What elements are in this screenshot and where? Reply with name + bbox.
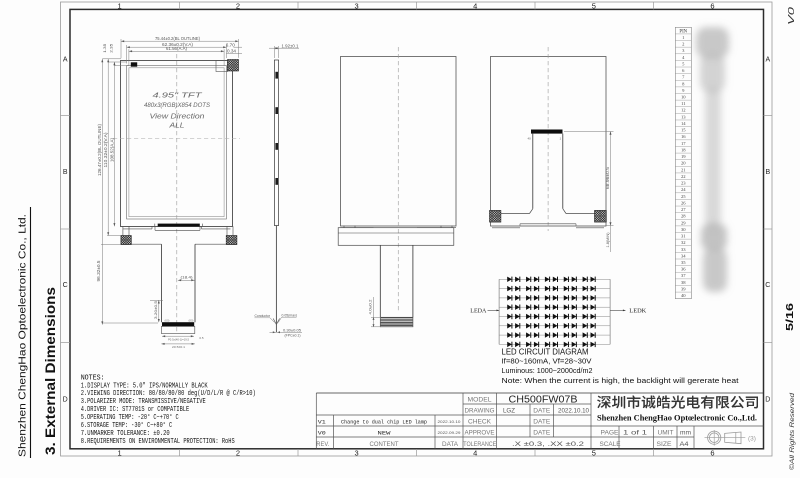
svg-text:1.35: 1.35 [103,44,107,53]
svg-text:SIZE: SIZE [657,441,673,448]
svg-text:A4: A4 [680,441,689,448]
svg-text:3.POLARIZER MODE: TRANSMISSIVE: 3.POLARIZER MODE: TRANSMISSIVE/NEGATIVE [81,398,206,406]
svg-text:37: 37 [681,273,686,278]
svg-text:28: 28 [681,214,686,219]
svg-text:2: 2 [236,2,240,11]
svg-text:4.95" TFT: 4.95" TFT [153,93,203,100]
svg-text:17: 17 [681,141,686,146]
svg-text:P0.5x(40-1)=19.5: P0.5x(40-1)=19.5 [168,338,189,342]
svg-text:38: 38 [681,280,686,285]
svg-text:1: 1 [118,2,122,11]
svg-text:PAGE: PAGE [601,430,620,437]
svg-text:11: 11 [681,101,686,106]
svg-text:2.35: 2.35 [110,44,114,53]
svg-text:CONTENT: CONTENT [370,441,399,448]
svg-text:3.20±0.5: 3.20±0.5 [153,300,158,319]
svg-text:UMIT: UMIT [658,430,674,437]
svg-text:4: 4 [473,448,477,457]
svg-text:6: 6 [710,448,714,457]
svg-text:(FPC±0.1): (FPC±0.1) [285,332,302,337]
svg-text:7.UNMARKER TOLERANCE: ±0.20: 7.UNMARKER TOLERANCE: ±0.20 [81,430,170,438]
svg-text:DATE: DATE [533,430,551,437]
svg-text:2022.10.10: 2022.10.10 [438,420,461,424]
svg-text:20: 20 [681,161,686,166]
svg-text:5: 5 [592,448,596,457]
svg-text:32: 32 [681,240,686,245]
svg-text:V0: V0 [318,430,327,437]
svg-text:23: 23 [681,181,686,186]
svg-text:30: 30 [681,227,686,232]
svg-text:0.34: 0.34 [227,49,237,54]
svg-text:Shenzhen ChengHao Optœlectroni: Shenzhen ChengHao Optœlectronic Co.,Ltd. [597,412,757,422]
svg-text:©All Rights Reserved: ©All Rights Reserved [788,392,796,470]
svg-text:0.5: 0.5 [199,336,204,340]
svg-text:18: 18 [681,147,686,152]
svg-text:Conductor: Conductor [255,313,271,318]
svg-text:LED CIRCUIT DIAGRAM: LED CIRCUIT DIAGRAM [502,348,589,357]
svg-text:3: 3 [355,2,359,11]
svg-text:13: 13 [681,114,686,119]
svg-text:27: 27 [681,207,686,212]
svg-text:16: 16 [681,134,686,139]
svg-text:26: 26 [681,200,686,205]
svg-text:1 of 1: 1 of 1 [623,430,648,437]
svg-text:View Direction: View Direction [150,113,205,120]
svg-text:Luminous: 1000~2000cd/m2: Luminous: 1000~2000cd/m2 [502,366,593,375]
svg-text:A: A [63,57,68,64]
svg-text:V0: V0 [786,7,796,25]
svg-text:LEDK: LEDK [629,308,647,314]
svg-text:61.56(A.A): 61.56(A.A) [166,46,188,51]
svg-text:(3): (3) [748,436,756,443]
svg-text:40: 40 [528,137,532,141]
svg-text:36: 36 [681,267,686,272]
svg-text:40: 40 [681,293,686,298]
svg-text:NEW: NEW [378,430,392,437]
svg-text:MODEL: MODEL [468,397,492,404]
svg-text:21: 21 [681,167,686,172]
svg-text:mm: mm [680,430,691,437]
svg-text:39: 39 [681,286,686,291]
svg-text:B: B [63,169,68,176]
svg-text:REV.: REV. [316,441,329,448]
svg-text:ALL: ALL [168,123,184,130]
svg-text:2: 2 [236,448,240,457]
svg-text:108.52(A.A): 108.52(A.A) [109,137,114,162]
svg-text:(60): (60) [165,318,170,322]
svg-text:LEDA: LEDA [470,308,487,314]
svg-text:5.OPERATING TEMP: -20° C~+70°: 5.OPERATING TEMP: -20° C~+70° C [81,413,179,422]
svg-text:2.VIEWING DIRECTION: 80/80/80/: 2.VIEWING DIRECTION: 80/80/80/80 deg(U/D… [81,390,256,398]
svg-text:68.96±0.5: 68.96±0.5 [605,166,610,189]
svg-text:.X ±0.3, .XX ±0.2: .X ±0.3, .XX ±0.2 [512,441,584,448]
svg-text:NOTES:: NOTES: [81,374,105,382]
svg-text:If=80~160mA, Vf=28~30V: If=80~160mA, Vf=28~30V [502,356,592,365]
svg-text:5: 5 [592,2,596,11]
svg-text:CHECK: CHECK [468,419,492,426]
svg-text:14: 14 [681,121,686,126]
svg-text:6: 6 [710,2,714,11]
svg-text:33: 33 [681,247,686,252]
svg-text:24: 24 [681,187,686,192]
svg-text:110.32±0.2(V.A): 110.32±0.2(V.A) [103,132,108,168]
svg-text:31: 31 [681,234,686,239]
svg-text:CH500FW07B: CH500FW07B [509,395,578,406]
svg-text:3: 3 [355,448,359,457]
svg-text:C: C [765,282,770,289]
svg-text:75.44±0.2(BL OUTLINE): 75.44±0.2(BL OUTLINE) [155,36,200,41]
svg-text:6.70: 6.70 [226,42,236,47]
svg-text:TOLERANCE: TOLERANCE [463,441,496,448]
svg-text:22: 22 [681,174,686,179]
svg-text:126.47±0.2(BL OUTLINE): 126.47±0.2(BL OUTLINE) [97,123,102,176]
svg-text:6.STORAGE TEMP: -30° C~+80° C: 6.STORAGE TEMP: -30° C~+80° C [81,421,173,430]
svg-text:4: 4 [473,2,477,11]
svg-text:DATA: DATA [442,441,459,448]
svg-text:V1: V1 [318,419,327,426]
svg-text:2022.10.10: 2022.10.10 [558,408,590,415]
svg-text:Shenzhen ChengHao Optoelectron: Shenzhen ChengHao Optoelectronic Co., Lt… [18,214,29,457]
svg-text:0.05(max): 0.05(max) [282,313,298,318]
svg-text:B: B [765,169,770,176]
svg-text:20.5±0.1: 20.5±0.1 [172,345,185,349]
svg-text:DATE: DATE [533,408,551,415]
svg-text:1.DISPLAY TYPE: 5.0" IPS/NORM: 1.DISPLAY TYPE: 5.0" IPS/NORMALLY BLACK [81,382,209,390]
svg-text:Change to dual chip LED lamp: Change to dual chip LED lamp [341,419,427,426]
svg-text:3. External Dimensions: 3. External Dimensions [43,287,58,455]
svg-text:LGZ: LGZ [503,408,515,415]
svg-text:10: 10 [681,95,686,100]
svg-text:A: A [765,57,770,64]
svg-text:35: 35 [681,260,686,265]
svg-text:D: D [63,397,68,404]
svg-text:DRAWING: DRAWING [465,408,495,415]
svg-text:15: 15 [681,128,686,133]
svg-text:PIN: PIN [679,30,687,35]
svg-text:96.32±0.5: 96.32±0.5 [96,260,101,282]
svg-text:5/16: 5/16 [785,302,796,331]
svg-text:(80): (80) [189,318,194,322]
svg-text:APPROVE: APPROVE [465,430,496,437]
svg-text:12: 12 [681,108,686,113]
svg-text:Note: When the current is high: Note: When the current is high, the back… [502,376,739,385]
svg-text:(18.4): (18.4) [181,275,194,280]
svg-text:D: D [765,397,770,404]
svg-text:C: C [63,282,68,289]
svg-text:25: 25 [681,194,686,199]
svg-text:DATE: DATE [533,419,551,426]
svg-text:1.8(MIN): 1.8(MIN) [606,232,610,248]
svg-text:4.0±0.2: 4.0±0.2 [369,300,373,315]
svg-text:1: 1 [118,448,122,457]
svg-text:480x3(RGB)X854 DOTS: 480x3(RGB)X854 DOTS [144,102,211,109]
svg-text:8.REQUIREMENTS ON ENVIRONMENTA: 8.REQUIREMENTS ON ENVIRONMENTAL PROTECTI… [81,438,235,446]
svg-text:34: 34 [681,253,686,258]
svg-text:19: 19 [681,154,686,159]
svg-text:1.92±0.1: 1.92±0.1 [282,44,300,49]
svg-text:29: 29 [681,220,686,225]
svg-text:SCALE: SCALE [600,441,622,448]
svg-text:4.DRIVER IC: ST7701S or COMPAT: 4.DRIVER IC: ST7701S or COMPATIBLE [81,406,190,414]
svg-text:2022.09.29: 2022.09.29 [438,431,461,435]
